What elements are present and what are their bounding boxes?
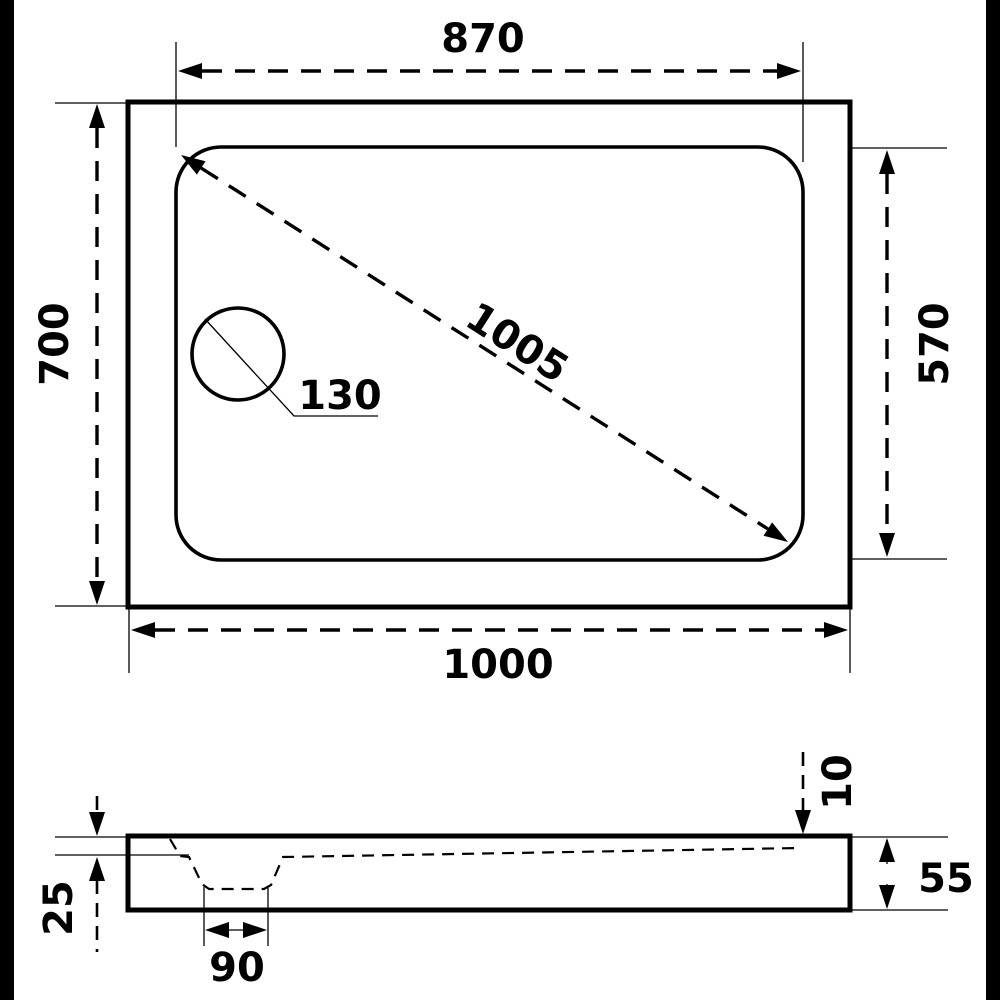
dim-700: 700 [32,103,130,606]
dim-10: 10 [795,752,861,834]
dim-870: 870 [176,16,803,162]
dim-90-arrow-right-icon [243,922,267,938]
dim-25-arrow-up-icon [89,857,105,881]
dim-25-arrow-down-icon [89,812,105,836]
dim-1000-arrow-left-icon [131,622,155,638]
dim-1005: 1005 [181,155,788,542]
outer-rim-rect [128,102,850,607]
dim-label-inner-width: 870 [441,16,525,62]
dim-90: 90 [204,887,268,991]
top-view: 130 870 700 [32,16,958,688]
dim-label-basin-depth: 25 [36,880,82,936]
dim-25: 25 [36,796,189,952]
dim-55: 55 [852,837,974,910]
dim-570-arrow-up-icon [879,150,895,174]
dim-label-outer-width: 1000 [442,642,553,688]
dim-570: 570 [850,148,958,559]
dim-1005-arrow-downright-icon [764,522,789,542]
dim-55-arrow-up-icon [879,838,895,862]
dim-570-arrow-down-icon [879,533,895,557]
dim-10-arrow-down-icon [795,810,811,834]
dim-label-inner-height: 570 [912,302,958,386]
side-view: 25 90 10 [36,752,974,991]
dim-label-total-height: 55 [918,856,974,902]
dim-label-edge-depth: 10 [815,754,861,810]
dim-label-outer-height: 700 [32,302,78,386]
dim-55-arrow-down-icon [879,885,895,909]
dim-1000-arrow-right-icon [824,622,848,638]
interior-floor-hidden-line [170,839,800,889]
dim-870-arrow-left-icon [178,63,202,79]
profile-body-rect [128,836,850,910]
dim-700-arrow-down-icon [89,581,105,605]
shower-tray-dimension-drawing: 130 870 700 [0,0,1000,1000]
dim-90-arrow-left-icon [205,922,229,938]
dim-700-arrow-up-icon [89,104,105,128]
dim-label-diagonal: 1005 [458,294,577,393]
drawing-canvas: 130 870 700 [0,0,1000,1000]
dim-label-drain-recess-width: 90 [209,945,265,991]
dim-label-drain-diameter: 130 [298,373,382,419]
drain-circle [192,308,284,400]
dim-1000: 1000 [129,607,850,688]
dim-870-arrow-right-icon [777,63,801,79]
